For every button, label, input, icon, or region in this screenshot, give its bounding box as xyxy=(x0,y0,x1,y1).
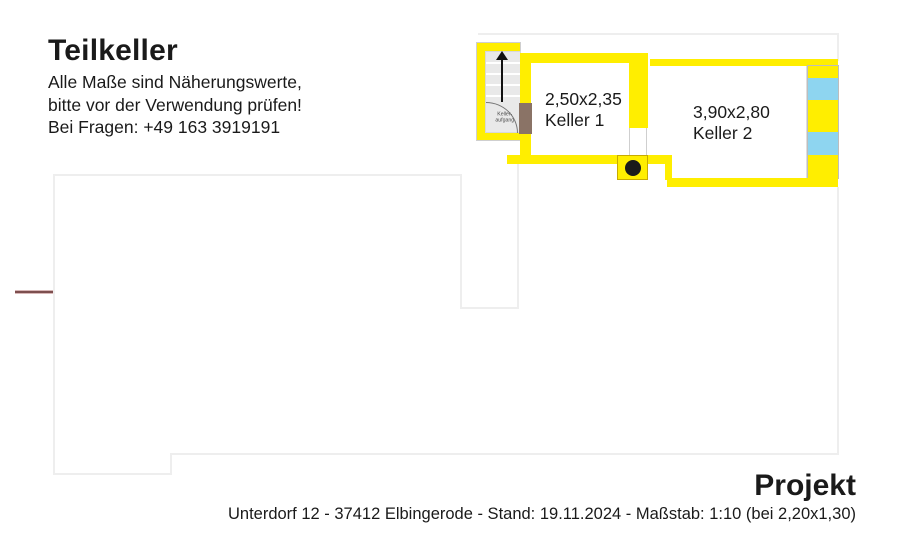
room-name: Keller 2 xyxy=(693,123,770,144)
outline-right xyxy=(837,187,839,455)
wall-segment xyxy=(808,66,838,78)
outline-notch-left xyxy=(460,174,462,309)
stair-label-line2: aufgang xyxy=(492,117,518,123)
wall-k2-bottom xyxy=(667,178,838,187)
stair-tread xyxy=(486,73,520,75)
floor-plan-sheet: Teilkeller Alle Maße sind Näherungswerte… xyxy=(0,0,900,533)
wall-k1-bottom xyxy=(507,155,617,164)
project-label: Projekt xyxy=(754,471,856,501)
project-details: Unterdorf 12 - 37412 Elbingerode - Stand… xyxy=(228,505,856,523)
wall-k1-left-upper xyxy=(520,63,531,103)
stair-label: Keller- aufgang xyxy=(492,111,518,123)
page-title: Teilkeller xyxy=(48,36,178,66)
door-jamb xyxy=(629,128,630,155)
stair-tread xyxy=(486,62,520,64)
room-name: Keller 1 xyxy=(545,110,622,131)
wall-k1-top xyxy=(520,53,648,63)
wall-k1-k2-divider xyxy=(629,63,648,128)
arrow-up-head-icon xyxy=(496,51,508,60)
stair-door xyxy=(519,103,532,134)
stair-tread xyxy=(486,84,520,86)
outline-top xyxy=(53,174,462,176)
outline-step xyxy=(170,454,172,475)
disclaimer-note: Alle Maße sind Näherungswerte, bitte vor… xyxy=(48,71,302,139)
room-dimensions: 3,90x2,80 xyxy=(693,102,770,123)
glass-block-window xyxy=(808,132,838,155)
wall-face-line xyxy=(806,66,807,178)
outline-plan-top xyxy=(478,33,839,35)
outline-notch-bottom xyxy=(460,307,519,309)
outline-bottom-low xyxy=(53,473,172,475)
outline-bottom xyxy=(170,453,839,455)
wall-segment xyxy=(808,155,838,178)
outline-plan-right-upper xyxy=(837,34,839,61)
stair-tread xyxy=(486,95,520,97)
arrow-up-icon xyxy=(501,58,503,102)
wall-segment xyxy=(808,100,838,132)
room-label-keller-2: 3,90x2,80 Keller 2 xyxy=(693,102,770,144)
glass-block-window xyxy=(808,78,838,100)
red-marker-line xyxy=(15,291,53,293)
note-line-1: Alle Maße sind Näherungswerte, xyxy=(48,71,302,94)
door-jamb xyxy=(646,128,647,155)
glass-block-wall xyxy=(808,66,838,178)
note-line-3: Bei Fragen: +49 163 3919191 xyxy=(48,116,302,139)
wall-k2-top xyxy=(650,59,838,66)
outline-left xyxy=(53,174,55,475)
post-circle-icon xyxy=(625,160,641,176)
room-dimensions: 2,50x2,35 xyxy=(545,89,622,110)
note-line-2: bitte vor der Verwendung prüfen! xyxy=(48,94,302,117)
outline-notch-right xyxy=(517,160,519,309)
room-label-keller-1: 2,50x2,35 Keller 1 xyxy=(545,89,622,131)
